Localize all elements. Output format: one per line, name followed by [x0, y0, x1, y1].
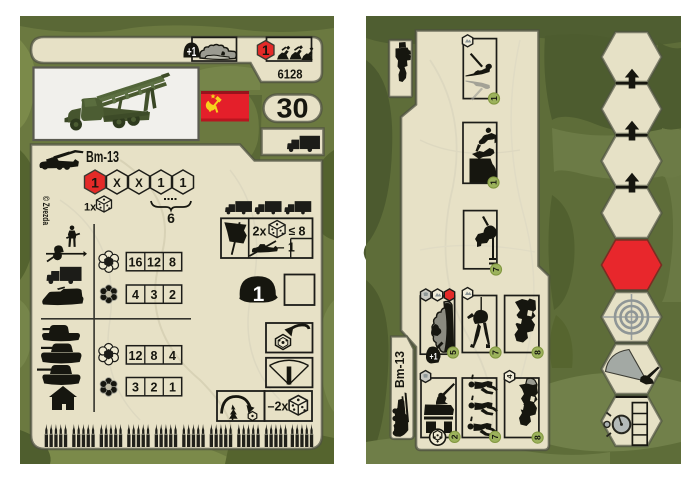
svg-text:– 1: – 1 — [278, 241, 295, 255]
svg-text:4: 4 — [169, 349, 176, 363]
svg-text:–2x: –2x — [268, 400, 289, 414]
svg-text:7: 7 — [490, 434, 500, 439]
svg-text:8: 8 — [533, 435, 543, 440]
svg-text:12: 12 — [147, 256, 161, 270]
svg-text:1: 1 — [157, 175, 164, 190]
svg-text:8: 8 — [533, 350, 543, 355]
svg-text:1: 1 — [253, 283, 265, 306]
svg-text:4: 4 — [132, 288, 139, 302]
svg-text:1: 1 — [489, 96, 499, 101]
svg-text:X: X — [135, 178, 143, 190]
svg-text:X: X — [113, 178, 121, 190]
svg-text:2: 2 — [169, 288, 176, 302]
svg-text:1: 1 — [91, 175, 99, 191]
svg-text:5: 5 — [448, 350, 458, 355]
svg-text:8: 8 — [299, 225, 306, 239]
svg-text:1x: 1x — [84, 202, 97, 214]
svg-text:7: 7 — [491, 350, 501, 355]
svg-text:1: 1 — [262, 43, 270, 58]
svg-text:12: 12 — [129, 349, 143, 363]
svg-text:6: 6 — [167, 210, 175, 226]
svg-text:© Zvezda: © Zvezda — [41, 196, 51, 226]
svg-text:16: 16 — [129, 256, 143, 270]
svg-text:≤: ≤ — [289, 224, 296, 238]
svg-text:1: 1 — [489, 180, 499, 185]
svg-text:1: 1 — [169, 381, 176, 395]
svg-text:Bm-13: Bm-13 — [86, 149, 119, 166]
svg-text:2: 2 — [450, 434, 460, 439]
svg-text:+1: +1 — [430, 352, 438, 362]
svg-text:2: 2 — [151, 381, 158, 395]
svg-text:+1: +1 — [187, 44, 197, 59]
svg-text:30: 30 — [277, 93, 309, 124]
svg-text:Bm-13: Bm-13 — [392, 351, 407, 388]
svg-text:8: 8 — [169, 256, 176, 270]
svg-text:8: 8 — [151, 349, 158, 363]
svg-text:2x: 2x — [253, 225, 267, 239]
svg-text:3: 3 — [151, 288, 158, 302]
svg-text:3: 3 — [132, 381, 139, 395]
svg-text:7: 7 — [491, 267, 501, 272]
svg-text:6128: 6128 — [278, 67, 303, 82]
svg-text:1: 1 — [179, 175, 186, 190]
